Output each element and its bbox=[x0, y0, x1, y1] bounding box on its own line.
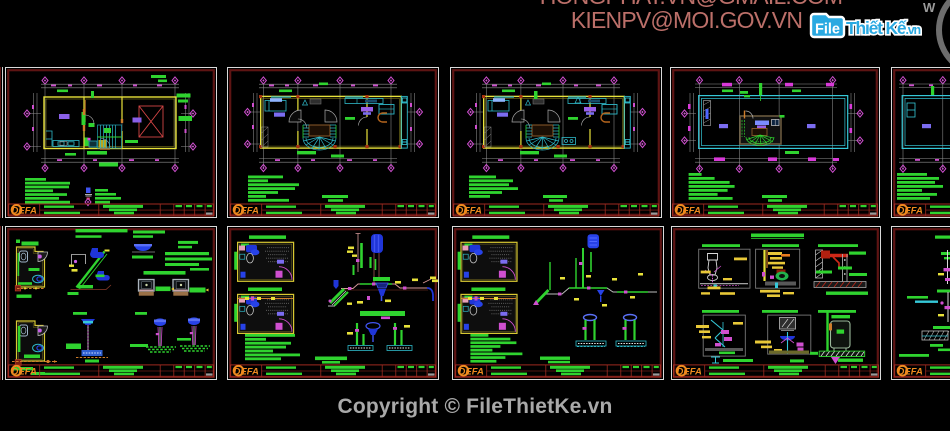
svg-text:Thiết Kế.vn: Thiết Kế.vn bbox=[846, 18, 920, 38]
svg-text:File: File bbox=[815, 22, 840, 38]
